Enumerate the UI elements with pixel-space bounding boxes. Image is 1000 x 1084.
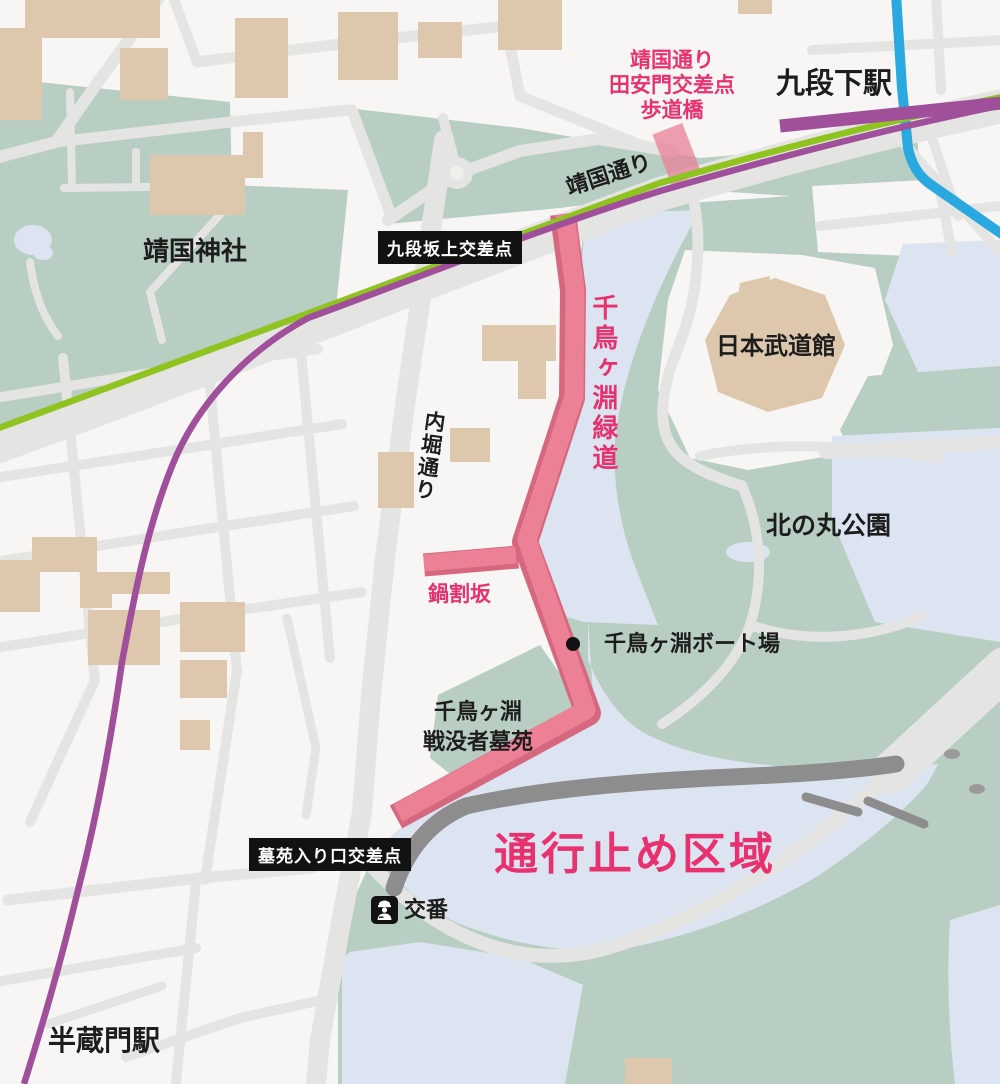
- nabewari-zaka-label: 鍋割坂: [428, 583, 491, 607]
- station-hanzomon-label: 半蔵門駅: [48, 1025, 160, 1057]
- cemetery-label-line2: 戦没者墓苑: [423, 729, 533, 754]
- police-box-label: 交番: [404, 897, 448, 922]
- police-box-marker: 交番: [371, 896, 448, 924]
- boat-location-dot: [566, 637, 580, 651]
- kudanzaka-intersection-badge: 九段坂上交差点: [378, 231, 522, 264]
- boen-entrance-intersection-badge: 墓苑入り口交差点: [249, 838, 411, 871]
- cemetery-label-line1: 千鳥ヶ淵: [434, 699, 522, 724]
- cemetery-label: 千鳥ヶ淵 戦没者墓苑: [388, 697, 568, 757]
- bridge-label-line2: 田安門交差点: [609, 74, 735, 97]
- kitanomaru-park-label: 北の丸公園: [766, 512, 891, 541]
- closure-map: 靖国通り 田安門交差点 歩道橋 九段下駅 靖国通り 九段坂上交差点 靖国神社 千…: [0, 0, 1000, 1084]
- bridge-label-line1: 靖国通り: [630, 49, 714, 72]
- budokan-label: 日本武道館: [716, 333, 836, 361]
- chidorigafuchi-greenway-label: 千鳥ヶ淵緑道: [588, 294, 618, 474]
- closed-area-label: 通行止め区域: [494, 830, 776, 881]
- yasukuni-shrine-label: 靖国神社: [143, 237, 247, 267]
- bridge-label-line3: 歩道橋: [641, 99, 704, 122]
- bridge-label: 靖国通り 田安門交差点 歩道橋: [582, 48, 762, 123]
- station-kudanshita-label: 九段下駅: [776, 68, 892, 101]
- map-base-art: [0, 0, 1000, 1084]
- boat-area-label: 千鳥ヶ淵ボート場: [604, 631, 780, 656]
- roundabout: [441, 157, 473, 189]
- police-officer-icon: [371, 896, 398, 924]
